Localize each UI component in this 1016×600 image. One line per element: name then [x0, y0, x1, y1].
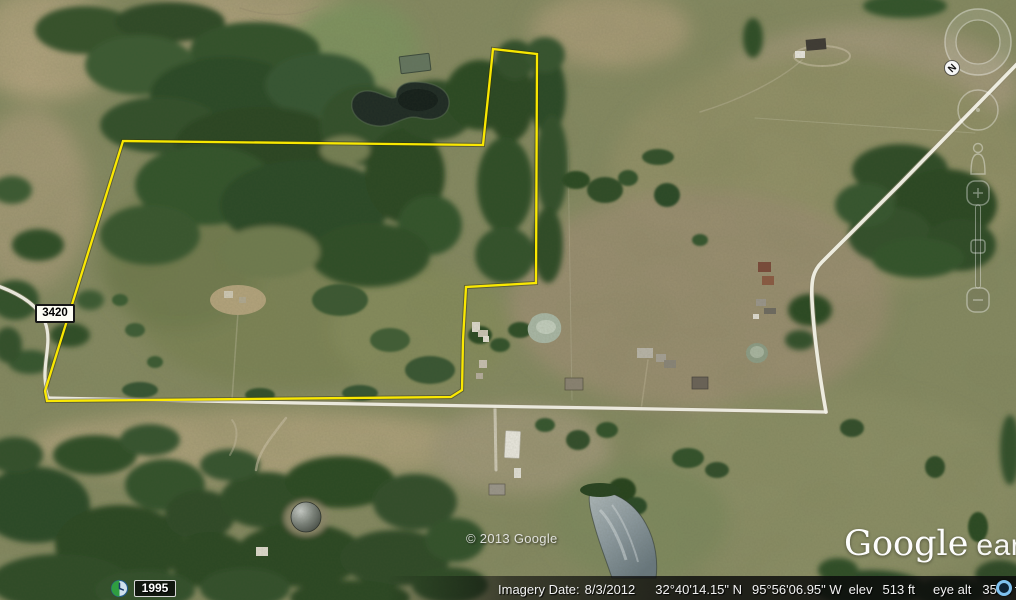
- zoom-slider: [967, 181, 989, 312]
- imagery-date-value: 8/3/2012: [585, 582, 636, 597]
- longitude-value: 95°56'06.95" W: [752, 582, 842, 597]
- imagery-grain: [0, 0, 1016, 600]
- zoom-slider-knob[interactable]: [971, 240, 985, 253]
- latitude-value: 32°40'14.15" N: [655, 582, 742, 597]
- elevation-value: 513 ft: [883, 582, 916, 597]
- satellite-map[interactable]: N: [0, 0, 1016, 600]
- road-label-3420: 3420: [35, 304, 75, 323]
- streaming-indicator-icon: [996, 580, 1012, 596]
- imagery-date-label: Imagery Date:: [498, 582, 580, 597]
- logo-earth: earth: [976, 529, 1016, 563]
- elevation-label: elev: [849, 582, 873, 597]
- google-earth-viewport[interactable]: N 3420 © 2013 Google Google earth 1995 I…: [0, 0, 1016, 600]
- copyright-watermark: © 2013 Google: [466, 531, 558, 546]
- eye-altitude-label: eye alt: [933, 582, 971, 597]
- logo-google: Google: [844, 524, 968, 564]
- status-bar: Imagery Date: 8/3/2012 32°40'14.15" N 95…: [498, 582, 1016, 597]
- google-earth-logo: Google earth: [844, 524, 1016, 564]
